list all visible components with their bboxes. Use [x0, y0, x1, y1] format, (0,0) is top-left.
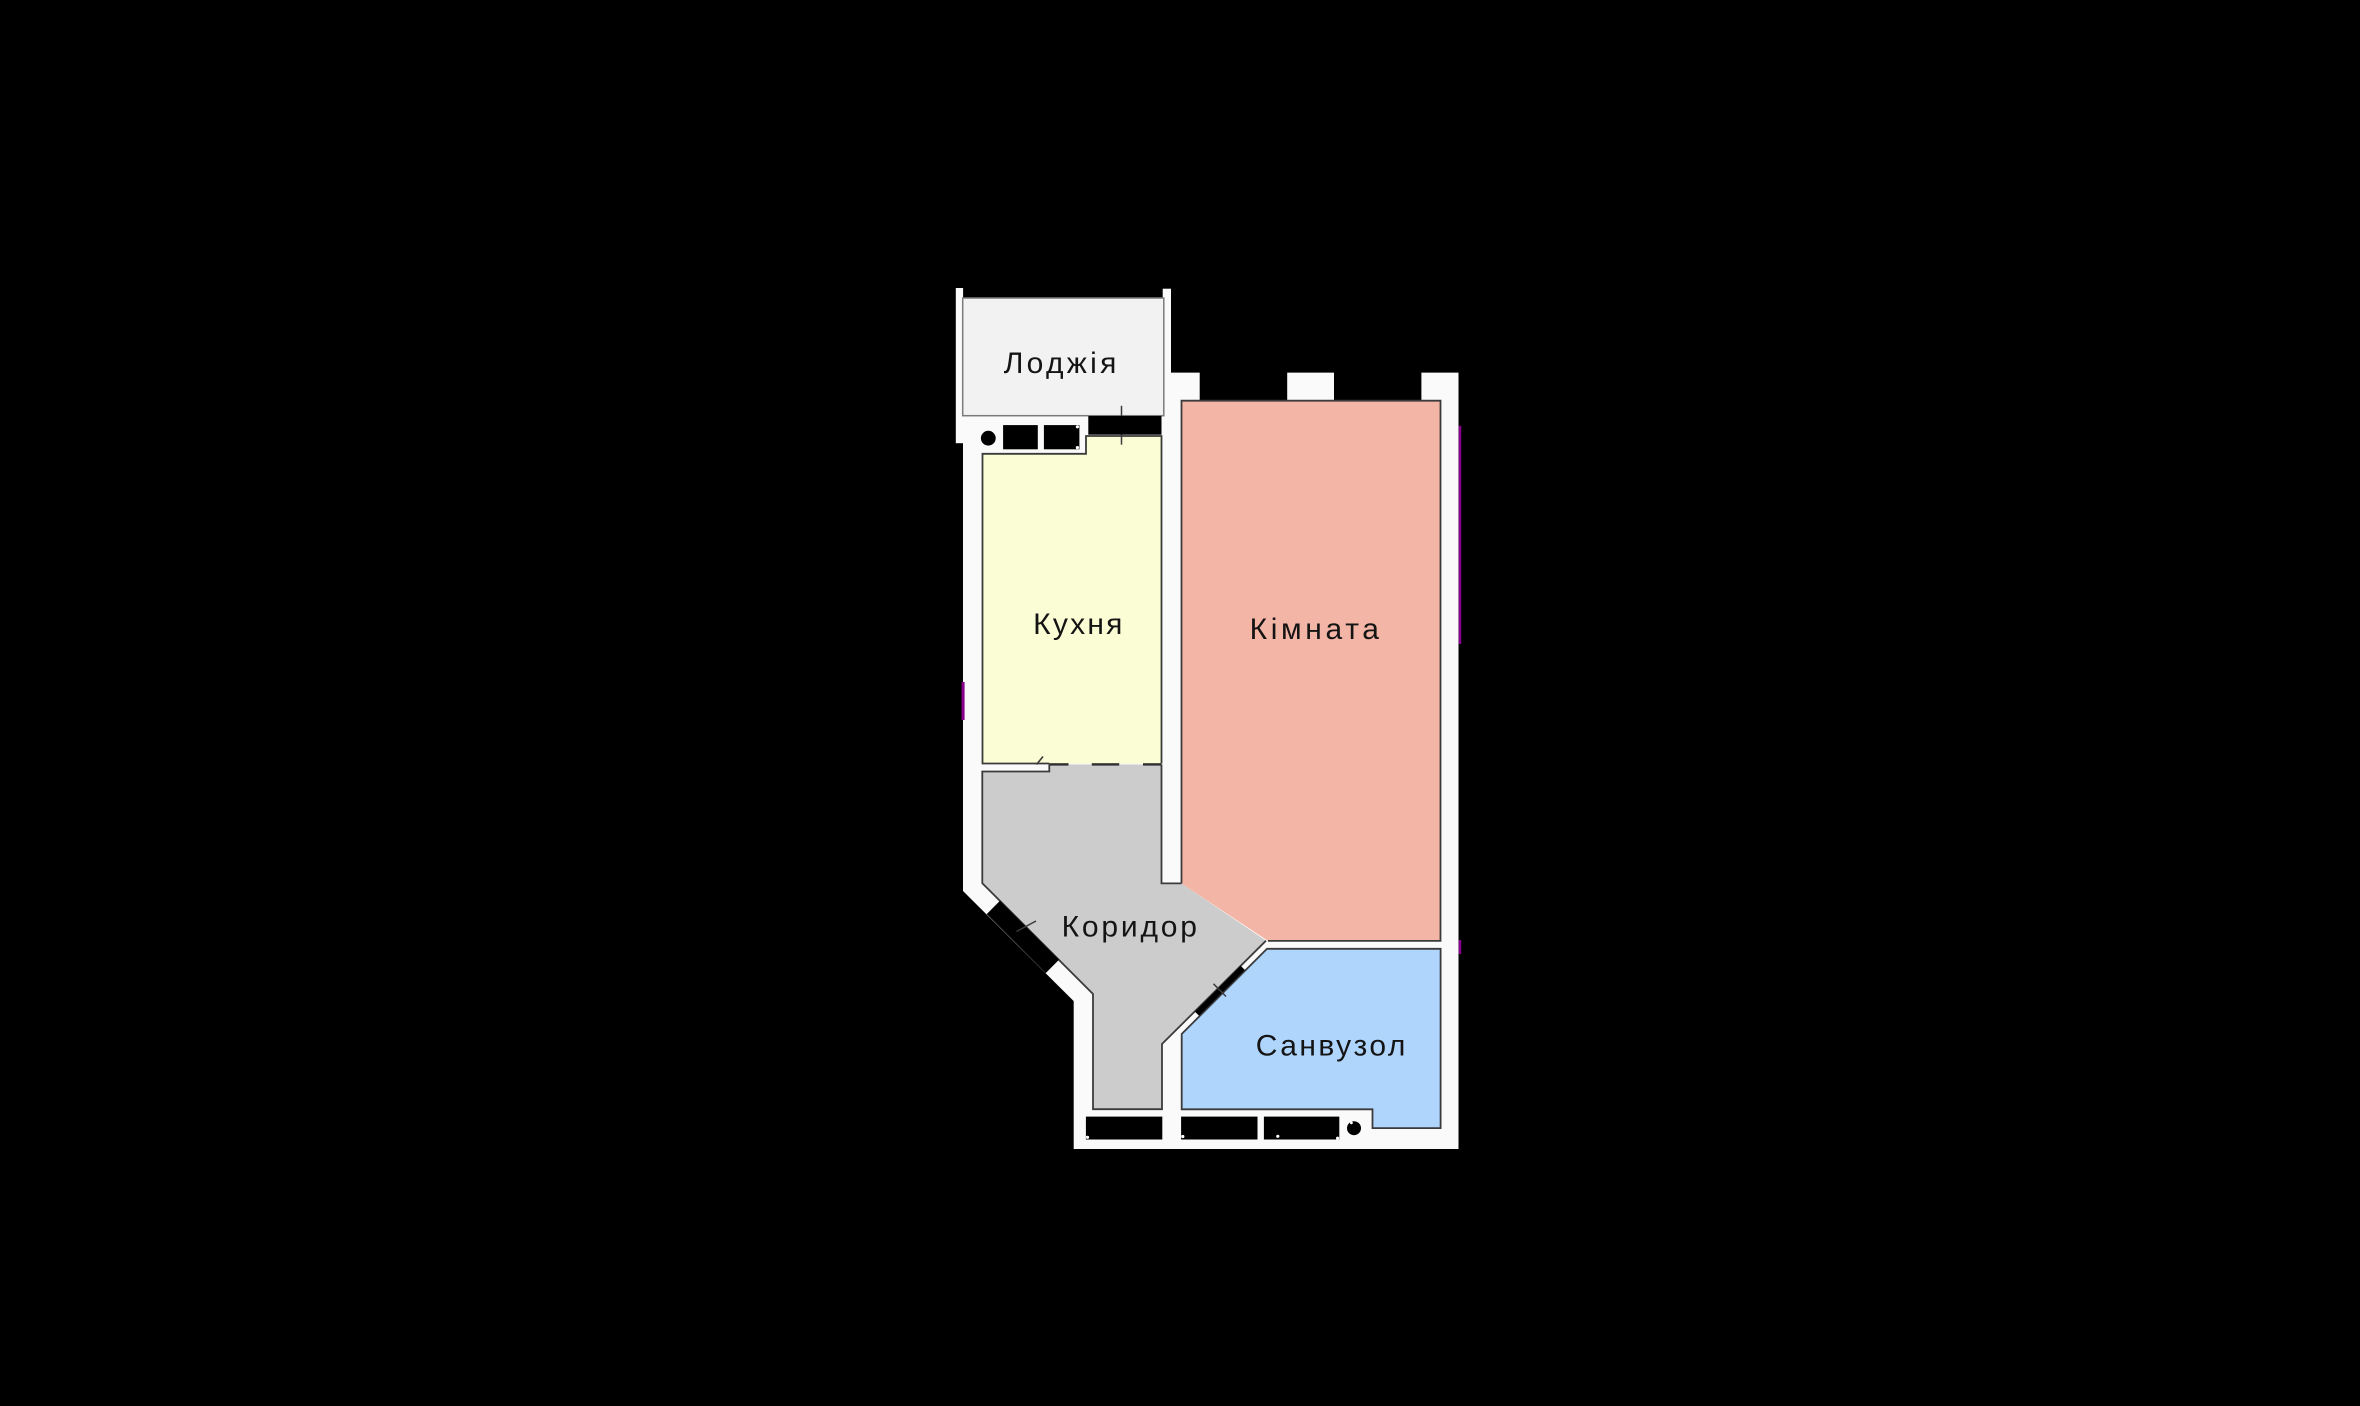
svg-text:Коридор: Коридор: [1062, 911, 1200, 944]
svg-text:Лоджія: Лоджія: [1004, 347, 1120, 380]
svg-text:Санвузол: Санвузол: [1256, 1030, 1408, 1063]
svg-text:Кімната: Кімната: [1250, 613, 1383, 646]
svg-text:Кухня: Кухня: [1033, 608, 1125, 641]
